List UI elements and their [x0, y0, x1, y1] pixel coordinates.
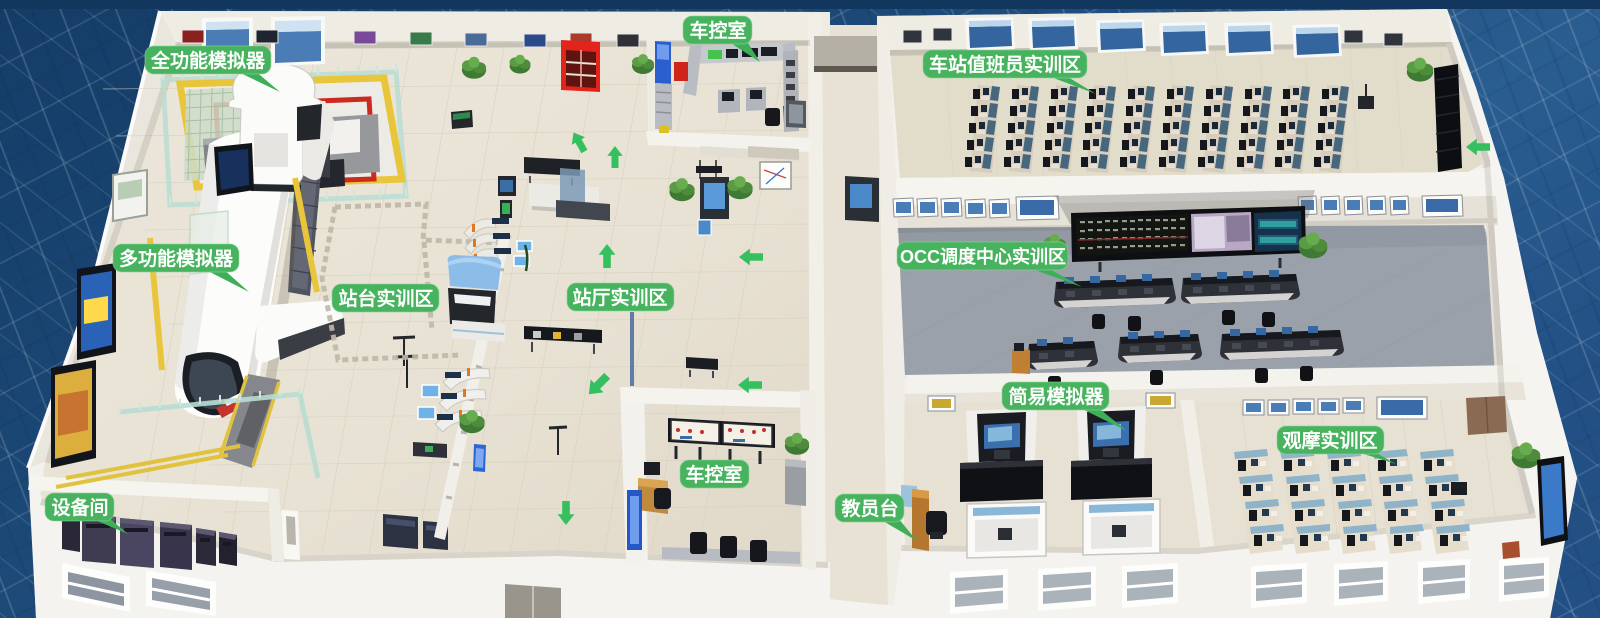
svg-text:设备间: 设备间	[51, 496, 108, 519]
svg-text:车控室: 车控室	[685, 463, 742, 486]
svg-text:车站值班员实训区: 车站值班员实训区	[929, 53, 1081, 76]
svg-text:观摩实训区: 观摩实训区	[1282, 429, 1377, 452]
svg-text:教员台: 教员台	[841, 497, 898, 520]
svg-text:站台实训区: 站台实训区	[338, 287, 433, 310]
svg-text:简易模拟器: 简易模拟器	[1008, 385, 1104, 408]
svg-text:OCC调度中心实训区: OCC调度中心实训区	[900, 246, 1066, 267]
svg-text:全功能模拟器: 全功能模拟器	[150, 49, 266, 72]
svg-text:站厅实训区: 站厅实训区	[572, 286, 667, 309]
svg-text:车控室: 车控室	[689, 19, 746, 42]
svg-text:多功能模拟器: 多功能模拟器	[119, 247, 234, 270]
